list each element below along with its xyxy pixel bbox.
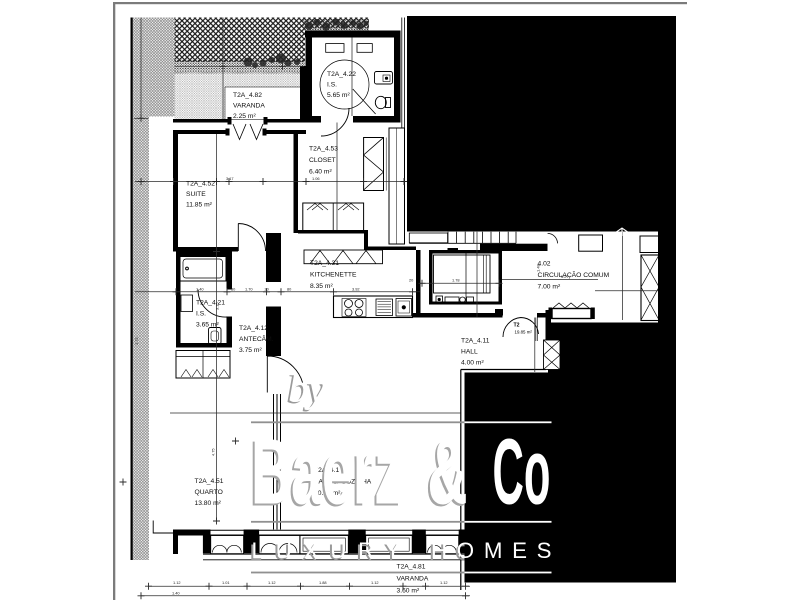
svg-text:1.73: 1.73 <box>134 337 139 345</box>
svg-text:T2A_4.52: T2A_4.52 <box>186 181 215 188</box>
svg-text:VARANDA: VARANDA <box>397 576 429 583</box>
svg-text:13.80 m²: 13.80 m² <box>195 500 222 507</box>
svg-text:1.12: 1.12 <box>173 580 181 585</box>
svg-text:by: by <box>288 366 326 411</box>
svg-text:3.92: 3.92 <box>352 286 360 291</box>
svg-text:CIRCULAÇÃO COMUM: CIRCULAÇÃO COMUM <box>538 270 610 279</box>
svg-text:3.60 m²: 3.60 m² <box>397 588 420 595</box>
svg-text:1.40: 1.40 <box>196 286 204 291</box>
svg-text:I.S.: I.S. <box>196 311 206 318</box>
svg-text:1.12: 1.12 <box>268 580 276 585</box>
svg-text:T2A_4.31: T2A_4.31 <box>310 260 339 267</box>
svg-text:HALL: HALL <box>461 349 478 356</box>
svg-text:T2: T2 <box>514 323 520 329</box>
svg-text:3.17: 3.17 <box>226 176 234 181</box>
svg-text:1.88: 1.88 <box>319 580 327 585</box>
svg-text:T2A_4.82: T2A_4.82 <box>233 92 262 99</box>
svg-text:1.12: 1.12 <box>440 580 448 585</box>
svg-text:3.75 m²: 3.75 m² <box>239 347 262 354</box>
svg-text:T2A_4.53: T2A_4.53 <box>309 146 338 153</box>
svg-text:4.02: 4.02 <box>538 261 551 268</box>
svg-text:1.78: 1.78 <box>452 278 460 283</box>
svg-text:T2A_4.51: T2A_4.51 <box>195 478 224 485</box>
svg-text:1.40: 1.40 <box>172 590 180 595</box>
svg-text:19.85 m²: 19.85 m² <box>515 330 533 335</box>
svg-text:SUITE: SUITE <box>186 191 206 198</box>
svg-text:&: & <box>428 420 468 524</box>
svg-text:4.75: 4.75 <box>211 448 216 456</box>
svg-text:CLOSET: CLOSET <box>309 157 336 164</box>
svg-text:T2A_4.81: T2A_4.81 <box>397 564 426 571</box>
svg-text:4.00 m²: 4.00 m² <box>461 360 484 367</box>
svg-text:1.70: 1.70 <box>245 286 253 291</box>
svg-text:1.01: 1.01 <box>222 580 230 585</box>
svg-text:Baerz: Baerz <box>251 420 402 524</box>
svg-text:QUARTO: QUARTO <box>195 489 223 496</box>
svg-text:Co: Co <box>493 420 551 524</box>
svg-text:2.25 m²: 2.25 m² <box>233 113 256 120</box>
svg-text:T2A_4.21: T2A_4.21 <box>196 300 225 307</box>
svg-text:6.40 m²: 6.40 m² <box>309 169 332 176</box>
svg-text:ANTECÂM.: ANTECÂM. <box>239 334 274 343</box>
svg-text:3.65 m²: 3.65 m² <box>196 322 219 329</box>
svg-text:11.85 m²: 11.85 m² <box>186 202 213 209</box>
svg-text:T2A_4.22: T2A_4.22 <box>327 71 356 78</box>
svg-text:T2A_4.11: T2A_4.11 <box>461 338 490 345</box>
svg-text:T2A_4.12: T2A_4.12 <box>239 325 268 332</box>
svg-text:VARANDA: VARANDA <box>233 103 265 110</box>
svg-text:1.06: 1.06 <box>312 176 320 181</box>
svg-text:1.12: 1.12 <box>371 580 379 585</box>
svg-text:8.35 m²: 8.35 m² <box>310 283 333 290</box>
svg-text:I.S.: I.S. <box>327 82 337 89</box>
svg-text:KITCHENETTE: KITCHENETTE <box>310 272 357 279</box>
svg-text:7.00 m²: 7.00 m² <box>538 284 561 291</box>
svg-text:5.65 m²: 5.65 m² <box>327 92 350 99</box>
